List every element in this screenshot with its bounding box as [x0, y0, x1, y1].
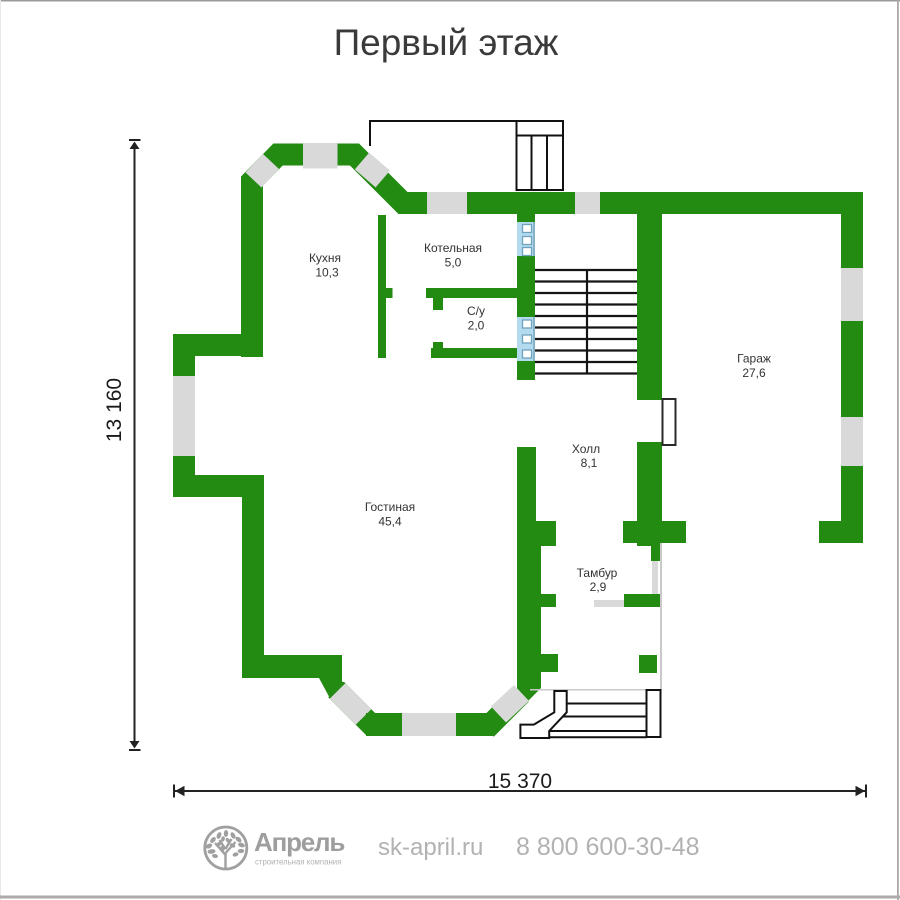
svg-text:8,1: 8,1 — [581, 456, 598, 470]
svg-text:2,9: 2,9 — [590, 580, 607, 594]
svg-text:строительная компания: строительная компания — [255, 858, 341, 867]
svg-text:Апрель: Апрель — [254, 827, 344, 857]
svg-text:5,0: 5,0 — [445, 256, 462, 270]
svg-text:2,0: 2,0 — [468, 319, 485, 333]
svg-text:8 800 600-30-48: 8 800 600-30-48 — [516, 833, 699, 861]
svg-text:10,3: 10,3 — [315, 266, 339, 280]
svg-text:Холл: Холл — [572, 442, 600, 456]
svg-text:45,4: 45,4 — [378, 515, 402, 529]
svg-text:Первый этаж: Первый этаж — [334, 22, 559, 63]
svg-text:С/у: С/у — [467, 304, 485, 318]
svg-text:Гостиная: Гостиная — [365, 500, 415, 514]
svg-text:15 370: 15 370 — [488, 770, 552, 793]
svg-text:Тамбур: Тамбур — [577, 566, 618, 580]
svg-text:13 160: 13 160 — [103, 378, 126, 442]
svg-text:Кухня: Кухня — [309, 251, 341, 265]
svg-text:27,6: 27,6 — [742, 366, 766, 380]
svg-text:sk-april.ru: sk-april.ru — [378, 834, 483, 861]
svg-text:Котельная: Котельная — [424, 241, 482, 255]
svg-text:Гараж: Гараж — [737, 352, 771, 366]
